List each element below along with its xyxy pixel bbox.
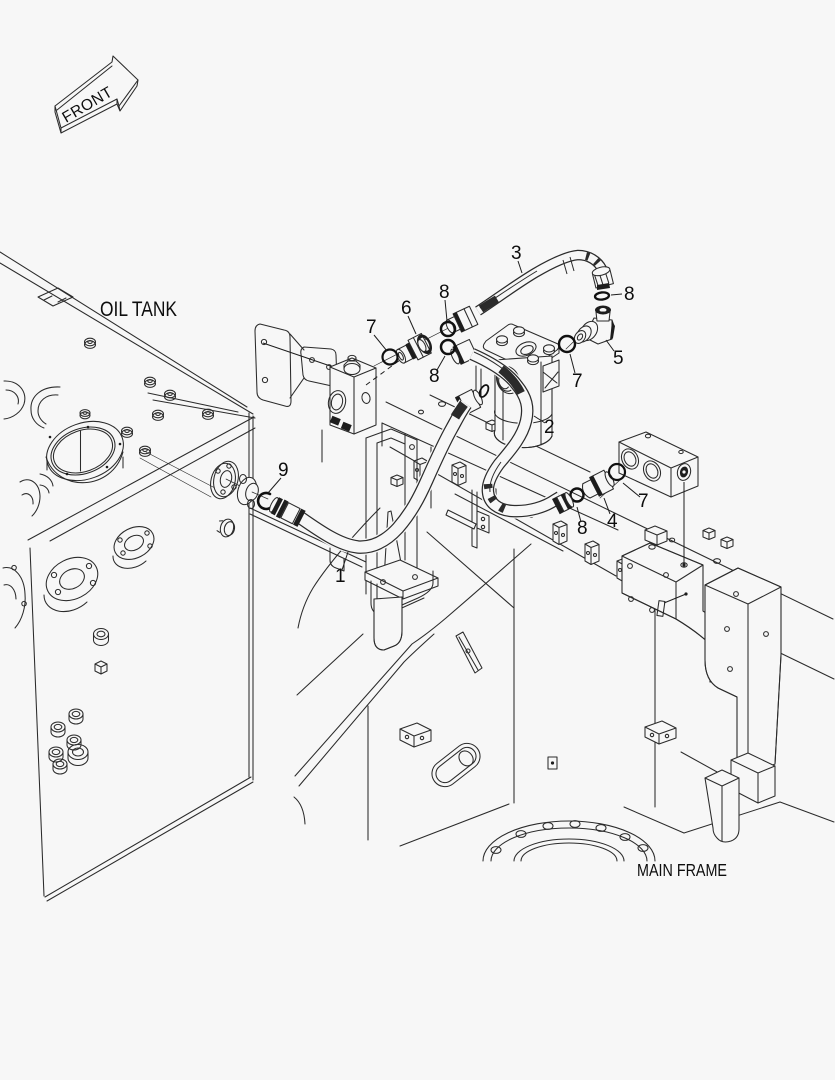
svg-text:9: 9 bbox=[278, 460, 289, 481]
svg-text:2: 2 bbox=[544, 417, 555, 438]
svg-text:8: 8 bbox=[624, 284, 635, 305]
svg-text:7: 7 bbox=[638, 491, 649, 512]
svg-text:8: 8 bbox=[439, 282, 450, 303]
svg-text:5: 5 bbox=[613, 348, 624, 369]
svg-text:6: 6 bbox=[401, 298, 412, 319]
svg-text:4: 4 bbox=[607, 511, 618, 532]
svg-text:3: 3 bbox=[511, 243, 522, 264]
svg-text:7: 7 bbox=[572, 371, 583, 392]
svg-text:8: 8 bbox=[577, 518, 588, 539]
svg-text:MAIN FRAME: MAIN FRAME bbox=[637, 860, 727, 880]
svg-text:OIL TANK: OIL TANK bbox=[100, 298, 177, 321]
svg-text:1: 1 bbox=[335, 566, 346, 587]
svg-text:7: 7 bbox=[366, 317, 377, 338]
